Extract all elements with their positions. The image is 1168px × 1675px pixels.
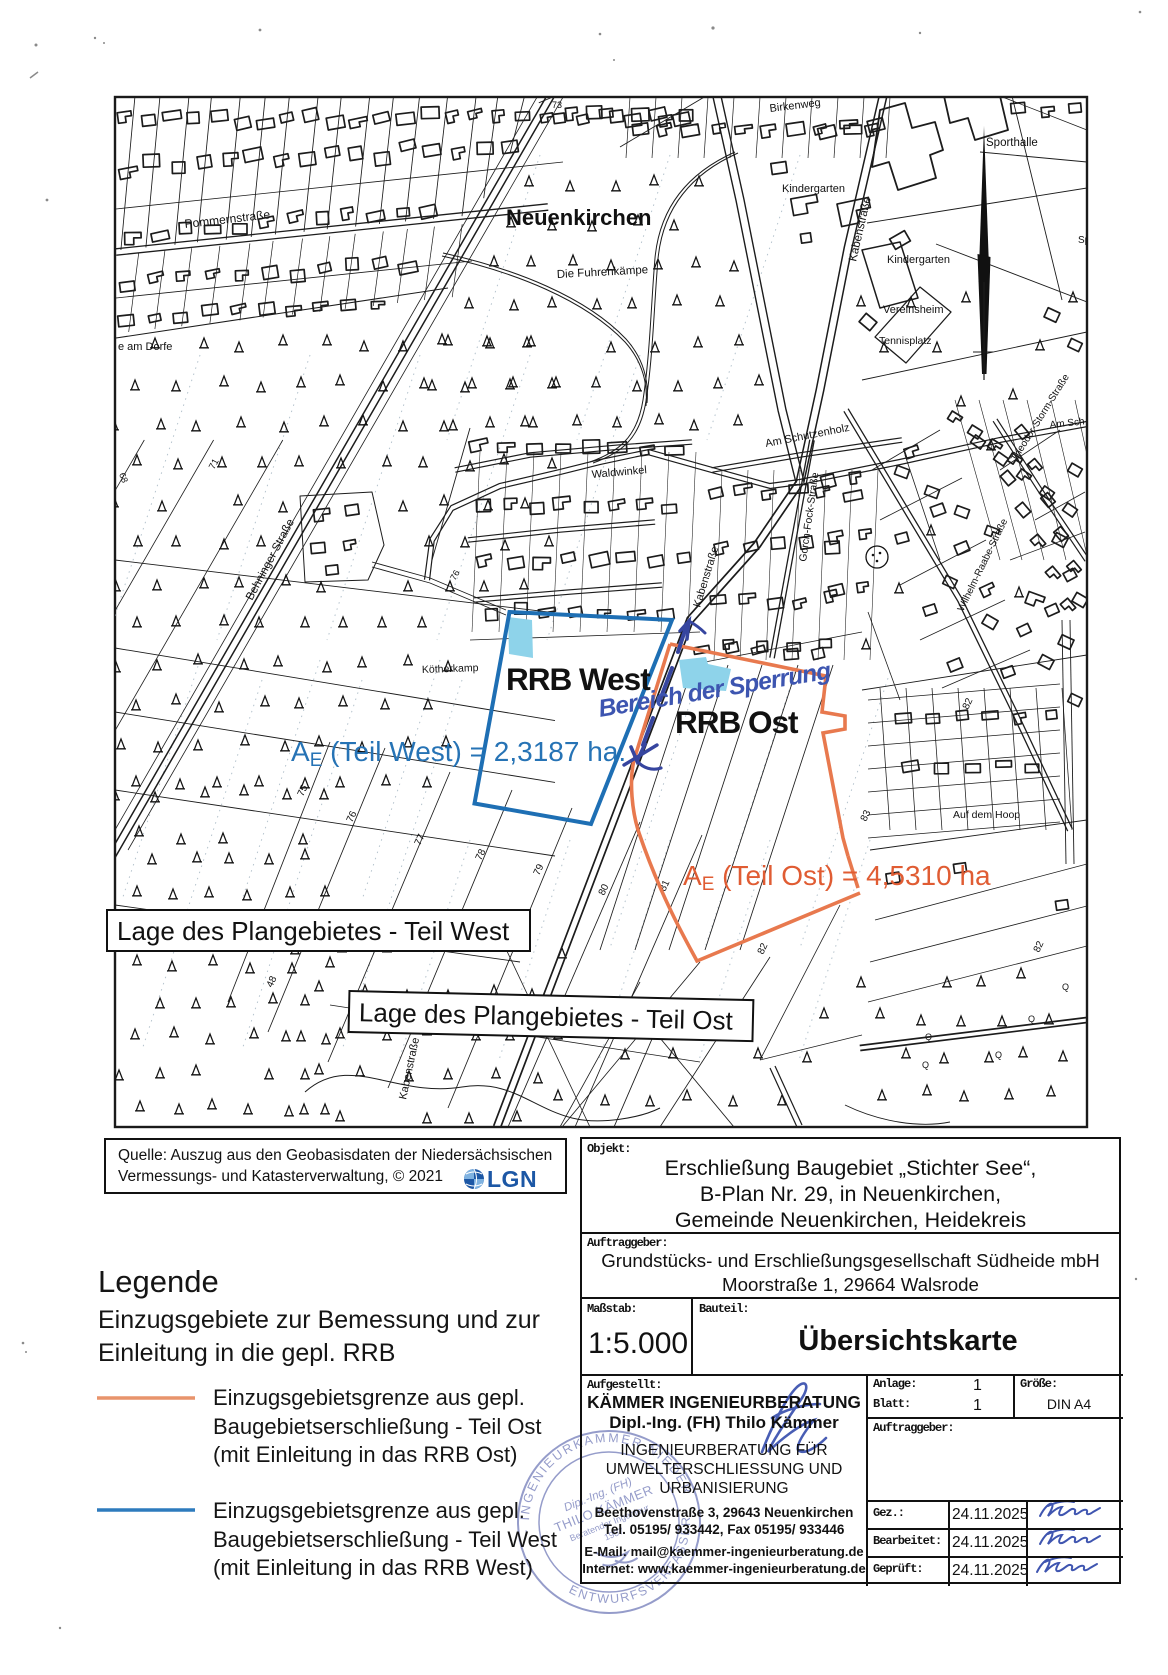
svg-text:Neuenkirchen: Neuenkirchen bbox=[506, 205, 652, 230]
svg-text:Sp: Sp bbox=[1078, 235, 1091, 246]
svg-text:Q: Q bbox=[1062, 982, 1069, 992]
svg-text:Am Sch: Am Sch bbox=[1049, 416, 1085, 431]
svg-text:LGN: LGN bbox=[487, 1166, 537, 1192]
svg-text:82: 82 bbox=[756, 941, 771, 956]
svg-text:82: 82 bbox=[1032, 939, 1047, 954]
svg-text:82: 82 bbox=[961, 696, 976, 711]
svg-text:Auf dem Hoop: Auf dem Hoop bbox=[953, 809, 1020, 821]
svg-text:77: 77 bbox=[413, 832, 428, 847]
svg-text:Wilhelm-Raabe-Straße: Wilhelm-Raabe-Straße bbox=[956, 517, 1011, 614]
svg-text:Q: Q bbox=[1028, 1014, 1035, 1024]
svg-text:Kindergarten: Kindergarten bbox=[887, 254, 950, 266]
svg-text:RRB Ost: RRB Ost bbox=[675, 704, 799, 740]
svg-text:76: 76 bbox=[345, 809, 360, 824]
svg-text:Birkenweg: Birkenweg bbox=[769, 97, 821, 115]
svg-text:68: 68 bbox=[117, 471, 130, 484]
svg-text:48: 48 bbox=[265, 974, 280, 989]
svg-text:Kindergarten: Kindergarten bbox=[782, 183, 845, 195]
svg-text:Vereinsheim: Vereinsheim bbox=[883, 304, 944, 316]
svg-text:Q: Q bbox=[995, 1050, 1002, 1060]
svg-text:Lage des Plangebietes - Teil W: Lage des Plangebietes - Teil West bbox=[117, 916, 510, 946]
svg-text:78: 78 bbox=[474, 847, 489, 862]
svg-text:Die Fuhrenkämpe: Die Fuhrenkämpe bbox=[557, 264, 649, 281]
svg-text:Am Schutzenholz: Am Schutzenholz bbox=[764, 422, 850, 450]
svg-text:AE (Teil Ost) = 4,5310 ha: AE (Teil Ost) = 4,5310 ha bbox=[683, 860, 991, 895]
svg-text:Waldwinkel: Waldwinkel bbox=[591, 464, 647, 481]
svg-text:Kötherkamp: Kötherkamp bbox=[422, 662, 479, 676]
svg-text:RRB West: RRB West bbox=[506, 661, 651, 697]
svg-text:Q: Q bbox=[922, 1060, 929, 1070]
svg-text:e am Dorfe: e am Dorfe bbox=[118, 341, 172, 353]
svg-text:Sporthalle: Sporthalle bbox=[986, 137, 1038, 149]
svg-text:80: 80 bbox=[597, 882, 612, 897]
svg-text:AE (Teil West) = 2,3187 ha.: AE (Teil West) = 2,3187 ha. bbox=[291, 736, 626, 771]
svg-text:Tennisplatz: Tennisplatz bbox=[879, 335, 932, 347]
svg-text:83: 83 bbox=[859, 808, 874, 823]
svg-text:Kabenstraße: Kabenstraße bbox=[397, 1037, 422, 1101]
